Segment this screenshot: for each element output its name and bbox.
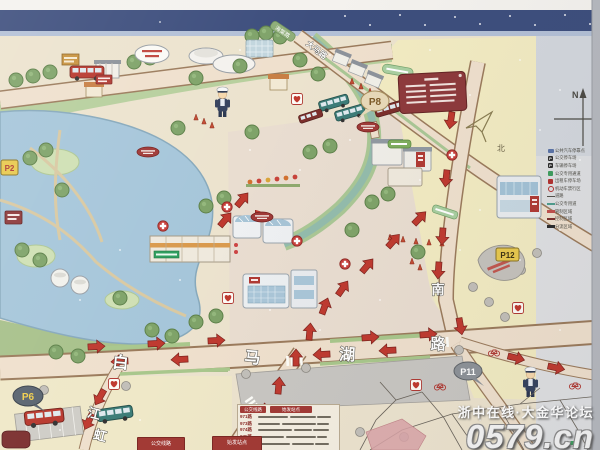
small-house-roof: [268, 74, 289, 79]
road-char-nan: 南: [431, 282, 444, 297]
no-entry-icon: [548, 186, 554, 192]
notice-board: [398, 71, 467, 113]
parking-bus-icon: P: [548, 156, 553, 161]
maroon-line-icon: [547, 218, 555, 221]
teal-line-icon: [547, 203, 555, 204]
road-char-lu: 路: [430, 335, 446, 353]
map-photo: P12 北 P2 P6 P8 P11: [0, 0, 600, 450]
legend-label: 控制区域: [555, 216, 572, 222]
legend-label: 公共汽车停靠点: [555, 148, 585, 154]
bus-table-row: 973路: [238, 421, 339, 428]
thin-line-icon: [547, 196, 555, 197]
legend-label: 管制区域: [555, 209, 572, 215]
bus-table-row: 974路: [238, 427, 339, 434]
illustrated-traffic-map: P12 北 P2 P6 P8 P11: [0, 0, 600, 450]
legend-label: 出租车停车场: [555, 178, 581, 184]
legend-label: 公交专用通道: [555, 171, 581, 177]
green-square-icon: [548, 171, 553, 176]
cut-table-header-2: 始发站点: [212, 436, 262, 450]
cut-table-header-1: 公交线路: [137, 437, 185, 450]
bus-table-col1: 公交线路: [240, 406, 266, 413]
svg-text:P11: P11: [460, 367, 476, 377]
red-line-icon: [547, 210, 555, 213]
bus-stop-icon: [548, 149, 554, 153]
shops-row: [150, 236, 238, 262]
road-char-hu: 湖: [339, 346, 356, 365]
legend-label: 车辆停车场: [555, 163, 576, 169]
bus-table-col2: 始发站点: [270, 406, 312, 413]
north-char: 北: [497, 144, 505, 153]
legend-label: 公交专用道: [555, 201, 576, 207]
legend-label: 公交停车场: [555, 156, 576, 162]
legend-label: 机动车禁行区: [555, 186, 581, 192]
svg-text:P8: P8: [369, 97, 382, 108]
compass-n: N: [572, 90, 579, 100]
glass-building: [497, 176, 541, 218]
small-house: [270, 78, 287, 90]
taxi-square-icon: [548, 179, 553, 184]
p2-sign: P2: [5, 164, 15, 173]
p12-sign: P12: [500, 251, 515, 260]
map-legend: 公共汽车停靠点 P公交停车场 P车辆停车场 公交专用通道 出租车停车场 机动车禁…: [546, 147, 600, 231]
black-line-icon: [547, 225, 555, 228]
bus-table-row: 971路: [238, 414, 339, 421]
legend-label: 分流区域: [555, 224, 572, 230]
parking-car-icon: P: [548, 163, 553, 168]
road-char-bai: 白: [112, 352, 130, 373]
mall-south: [243, 270, 317, 308]
road-char-ma: 马: [244, 348, 261, 367]
legend-label: 道路: [555, 194, 564, 200]
svg-text:P6: P6: [22, 392, 35, 403]
